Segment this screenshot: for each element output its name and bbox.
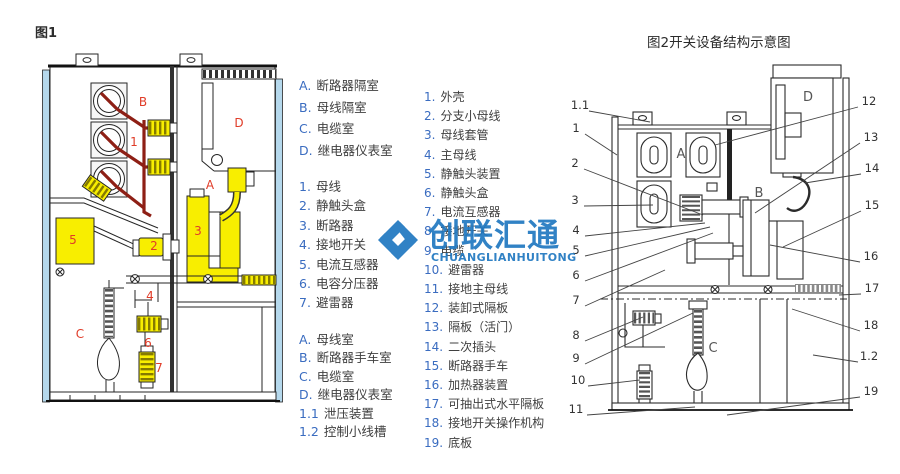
legend-text: 接地开关操作机构 [448, 416, 544, 430]
fig2-callout-6: 6 [572, 268, 579, 282]
legend-text: 静触头装置 [440, 167, 500, 181]
fig2-partition-bolts [711, 286, 772, 294]
legend-item: B.断路器手车室 [299, 349, 393, 367]
legend-key: 6. [424, 186, 435, 200]
fig1-lifting-lugs [76, 54, 202, 66]
legend-text: 避雷器 [448, 263, 484, 277]
legend-text: 继电器仪表室 [318, 387, 393, 402]
legend-text: 断路器手车室 [317, 350, 392, 365]
legend-item: C.电缆室 [299, 118, 393, 140]
legend-key: 9. [424, 244, 435, 258]
fig2-callout-17: 17 [865, 281, 880, 295]
legend-item: 10.避雷器 [424, 261, 544, 280]
legend-text: 装卸式隔板 [448, 301, 508, 315]
legend-item: 17.可抽出式水平隔板 [424, 395, 544, 414]
legend-text: 控制小线槽 [324, 424, 387, 439]
fig1-label-B: B [139, 95, 147, 109]
legend-key: 15. [424, 359, 443, 373]
fig2-callout-12: 12 [862, 94, 877, 108]
legend-text: 底板 [448, 436, 472, 450]
legend-item: 7.电流互感器 [424, 203, 544, 222]
fig1-caption: 图1 [35, 22, 57, 41]
legend-key: 7. [299, 295, 311, 310]
fig2-earthing-switch [619, 303, 665, 405]
fig1-label-6: 6 [144, 336, 152, 350]
legend-item: 18.接地开关操作机构 [424, 414, 544, 433]
fig1-label-D: D [234, 116, 243, 130]
legend-item: 7.避雷器 [299, 293, 378, 312]
legend-key: 5. [299, 257, 311, 272]
legend-key: 4. [424, 148, 435, 162]
legend-text: 母线隔室 [317, 100, 367, 115]
legend-key: A. [299, 78, 311, 93]
legend-key: 4. [299, 237, 311, 252]
legend-text: 继电器仪表室 [318, 143, 393, 158]
legend-key: 11. [424, 282, 443, 296]
fig1-label-3: 3 [194, 224, 202, 238]
legend-key: 2. [424, 109, 435, 123]
fig2-callout-1-1: 1.1 [571, 98, 589, 112]
fig2-callout-13: 13 [864, 130, 879, 144]
legend-text: 电缆室 [317, 369, 355, 384]
legend-item: A.母线室 [299, 331, 393, 349]
fig2-callout-5: 5 [572, 243, 579, 257]
fig2-contact-assembly [680, 183, 748, 221]
legend-key: A. [299, 332, 311, 347]
legend-key: 7. [424, 205, 435, 219]
legend-text: 隔板（活门） [448, 320, 520, 334]
fig2-label-A: A [677, 147, 686, 162]
legend-item: 9.电缆 [424, 242, 544, 261]
legend-item: 1.外壳 [424, 88, 544, 107]
legend-text: 电流互感器 [440, 205, 500, 219]
legend-item: 14.二次插头 [424, 338, 544, 357]
fig2-callout-4: 4 [572, 223, 579, 237]
legend-item: 3.断路器 [299, 216, 378, 235]
fig2-caption: 图2开关设备结构示意图 [647, 31, 791, 51]
legend-item: 19.底板 [424, 434, 544, 453]
legend-text: 电容分压器 [316, 276, 379, 291]
fig1-label-7: 7 [155, 361, 163, 375]
fig2-relay-panel [771, 65, 841, 173]
fig1-label-5: 5 [69, 233, 77, 247]
fig2-base-plate [612, 403, 849, 410]
fig2-label-C: C [708, 341, 717, 356]
legend-item: B.母线隔室 [299, 97, 393, 119]
legend-text: 母线 [316, 179, 341, 194]
legend-key: 18. [424, 416, 443, 430]
legend1-rooms-list: A.断路器隔室B.母线隔室C.电缆室D.继电器仪表室 [299, 75, 393, 161]
legend-item: 2.分支小母线 [424, 107, 544, 126]
legend-text: 母线套管 [440, 128, 488, 142]
fig1-bolt [56, 268, 64, 276]
fig2-callout-18: 18 [864, 318, 879, 332]
legend-key: 12. [424, 301, 443, 315]
legend-item: 3.母线套管 [424, 126, 544, 145]
legend-item: 12.装卸式隔板 [424, 299, 544, 318]
legend-key: 1.2 [299, 424, 319, 439]
fig2-callout-3: 3 [571, 193, 578, 207]
legend-text: 母线室 [316, 332, 354, 347]
legend-key: 3. [424, 128, 435, 142]
legend2-items-list: 1.外壳2.分支小母线3.母线套管4.主母线5.静触头装置6.静触头盒7.电流互… [424, 88, 544, 453]
legend-item: 15.断路器手车 [424, 357, 544, 376]
fig1-label-1: 1 [130, 135, 138, 149]
fig2-callout-7: 7 [572, 293, 579, 307]
legend1-parts-list: 1.母线2.静触头盒3.断路器4.接地开关5.电流互感器6.电容分压器7.避雷器 [299, 177, 378, 313]
legend-text: 电缆 [440, 244, 464, 258]
legend-key: 10. [424, 263, 443, 277]
watermark-logo-icon [374, 216, 422, 264]
legend-key: D. [299, 143, 313, 158]
fig2-label-B: B [755, 186, 764, 201]
legend-key: C. [299, 369, 312, 384]
legend-item: 5.电流互感器 [299, 255, 378, 274]
legend-item: 1.1泄压装置 [299, 405, 393, 423]
legend-item: A.断路器隔室 [299, 75, 393, 97]
fig1-label-C: C [76, 327, 84, 341]
legend-item: 13.隔板（活门） [424, 318, 544, 337]
legend1-rooms2-list: A.母线室B.断路器手车室C.电缆室D.继电器仪表室1.1泄压装置1.2控制小线… [299, 331, 393, 441]
legend-key: 13. [424, 320, 443, 334]
legend-text: 二次插头 [448, 340, 496, 354]
fig2-callout-1: 1 [572, 121, 579, 135]
legend-text: 断路器手车 [448, 359, 508, 373]
legend-text: 断路器 [316, 218, 354, 233]
legend-text: 电流互感器 [316, 257, 379, 272]
legend-item: 4.接地开关 [299, 235, 378, 254]
legend-key: 8. [424, 224, 435, 238]
legend-item: C.电缆室 [299, 368, 393, 386]
fig1-label-2: 2 [150, 239, 158, 253]
legend-key: 6. [299, 276, 311, 291]
legend-item: 6.电容分压器 [299, 274, 378, 293]
fig1-label-4: 4 [146, 289, 154, 303]
legend-item: 11.接地主母线 [424, 280, 544, 299]
legend-key: 5. [424, 167, 435, 181]
fig2-callout-16: 16 [864, 249, 879, 263]
legend-key: B. [299, 350, 312, 365]
fig2-callout-1-2: 1.2 [860, 349, 878, 363]
legend-text: 可抽出式水平隔板 [448, 397, 544, 411]
fig2-callout-11: 11 [569, 402, 584, 416]
legend-item: D.继电器仪表室 [299, 386, 393, 404]
fig1-label-A: A [206, 178, 215, 192]
legend-key: 19. [424, 436, 443, 450]
fig2-callout-19: 19 [864, 384, 879, 398]
legend-key: 14. [424, 340, 443, 354]
fig2-right-wall [843, 78, 849, 407]
switchgear-structure-figure-page: 图1 图2开关设备结构示意图 [0, 0, 900, 474]
legend-text: 泄压装置 [324, 406, 374, 421]
legend-key: 1. [299, 179, 311, 194]
legend-item: 6.静触头盒 [424, 184, 544, 203]
legend-text: 主母线 [440, 148, 476, 162]
legend-text: 加热器装置 [448, 378, 508, 392]
legend-text: 分支小母线 [440, 109, 500, 123]
legend-text: 静触头盒 [316, 198, 366, 213]
legend-key: 1. [424, 90, 435, 104]
fig2-line-diagram: A B C D 1.1 1 2 3 4 5 6 7 8 9 10 11 12 1… [555, 55, 900, 472]
fig2-lifting-lugs [633, 112, 746, 125]
legend-text: 电缆室 [317, 121, 355, 136]
legend-item: 8.接地开关 [424, 222, 544, 241]
legend-item: 16.加热器装置 [424, 376, 544, 395]
legend-key: D. [299, 387, 313, 402]
legend-item: D.继电器仪表室 [299, 140, 393, 162]
legend-key: 2. [299, 198, 311, 213]
legend-key: C. [299, 121, 312, 136]
legend-key: 17. [424, 397, 443, 411]
fig1-left-panel [43, 70, 50, 402]
legend-text: 外壳 [440, 90, 464, 104]
fig1-cutaway-diagram: B 1 D A 5 2 3 C 4 6 7 [40, 50, 285, 422]
fig2-callout-2: 2 [571, 156, 578, 170]
legend-key: 16. [424, 378, 443, 392]
fig2-callout-14: 14 [865, 161, 880, 175]
legend-key: 1.1 [299, 406, 319, 421]
fig2-callout-10: 10 [571, 373, 586, 387]
legend-text: 接地主母线 [448, 282, 508, 296]
legend-text: 静触头盒 [440, 186, 488, 200]
fig2-callout-15: 15 [865, 198, 880, 212]
legend-item: 1.母线 [299, 177, 378, 196]
legend-text: 避雷器 [316, 295, 354, 310]
fig2-left-wall [612, 117, 618, 407]
fig2-label-D: D [803, 90, 813, 105]
legend-item: 4.主母线 [424, 146, 544, 165]
legend-item: 5.静触头装置 [424, 165, 544, 184]
fig2-cable [687, 301, 708, 407]
legend-key: 3. [299, 218, 311, 233]
fig1-right-panel [276, 79, 283, 402]
fig2-callout-8: 8 [572, 328, 579, 342]
legend-item: 2.静触头盒 [299, 196, 378, 215]
legend-key: B. [299, 100, 312, 115]
fig2-callout-9: 9 [572, 351, 579, 365]
legend-text: 接地开关 [316, 237, 366, 252]
legend-item: 1.2控制小线槽 [299, 423, 393, 441]
legend-text: 接地开关 [440, 224, 488, 238]
legend-text: 断路器隔室 [316, 78, 379, 93]
